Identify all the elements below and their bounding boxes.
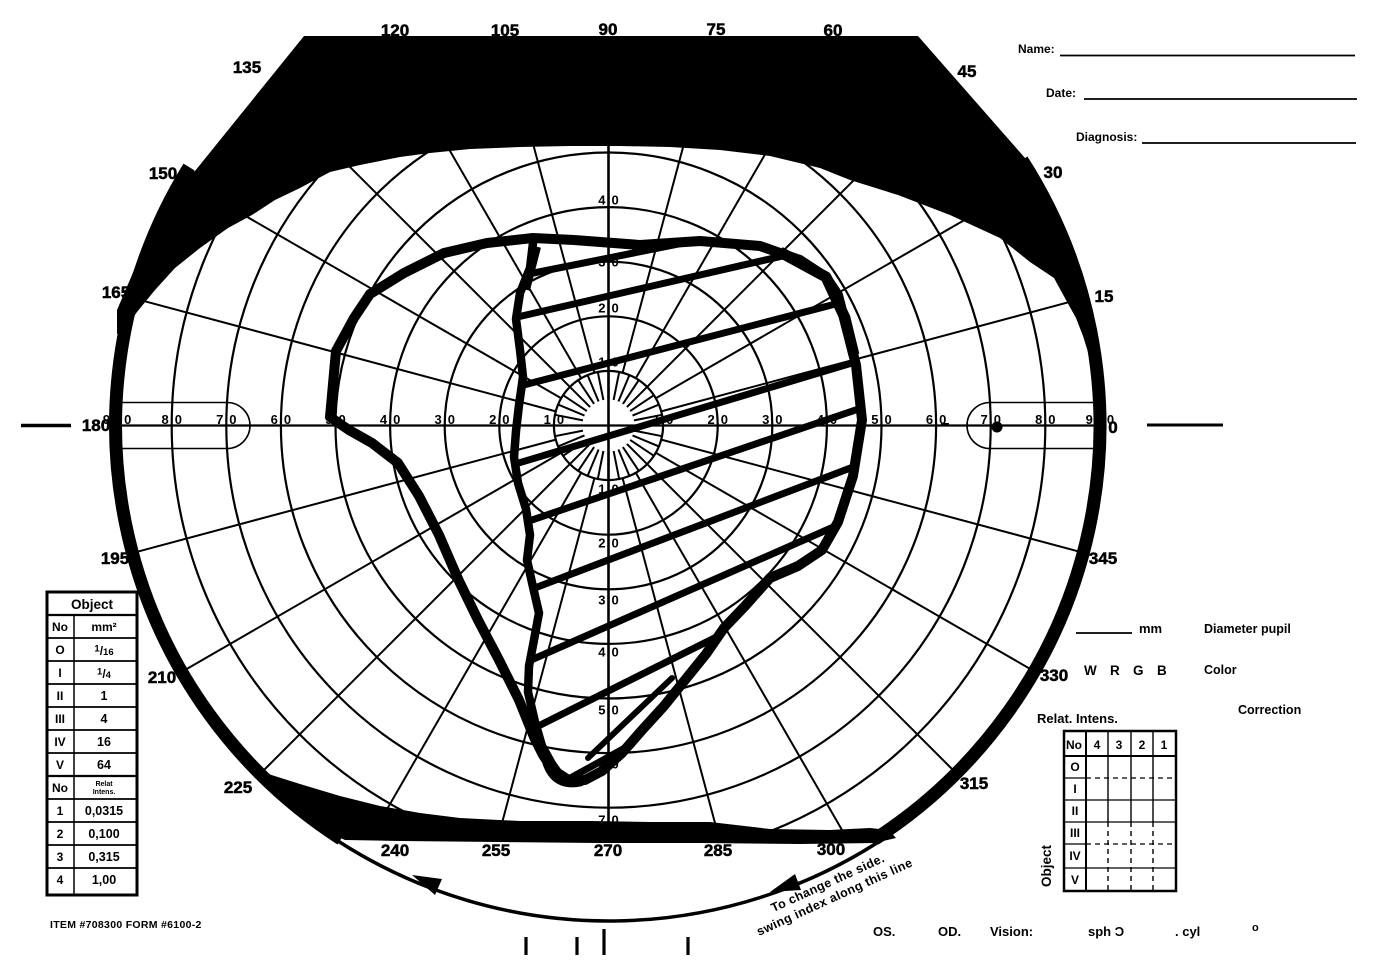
svg-text:315: 315 [960, 774, 988, 793]
svg-text:0: 0 [612, 703, 619, 718]
svg-text:0: 0 [994, 412, 1001, 427]
svg-text:OD.: OD. [938, 924, 961, 939]
svg-text:mm²: mm² [91, 620, 116, 634]
svg-text:5: 5 [598, 703, 605, 718]
svg-text:B: B [1157, 663, 1167, 678]
svg-text:3: 3 [57, 850, 64, 864]
svg-text:90: 90 [599, 20, 618, 39]
svg-text:180: 180 [82, 416, 110, 435]
svg-text:0: 0 [557, 412, 564, 427]
svg-text:8: 8 [1035, 412, 1042, 427]
svg-text:2: 2 [598, 536, 605, 551]
svg-text:0: 0 [885, 412, 892, 427]
svg-text:4: 4 [101, 712, 108, 726]
svg-text:mm: mm [1139, 621, 1162, 636]
svg-text:1: 1 [1161, 738, 1168, 752]
svg-text:9: 9 [1086, 412, 1093, 427]
svg-text:195: 195 [101, 549, 129, 568]
svg-text:Name:: Name: [1018, 42, 1055, 56]
svg-text:Object: Object [1039, 844, 1054, 887]
svg-text:0: 0 [612, 193, 619, 208]
svg-text:3: 3 [598, 593, 605, 608]
svg-text:Diameter pupil: Diameter pupil [1204, 622, 1291, 636]
svg-text:No: No [1066, 738, 1082, 752]
svg-text:Color: Color [1204, 663, 1237, 677]
svg-text:II: II [57, 689, 64, 703]
svg-text:1: 1 [57, 804, 64, 818]
svg-text:No: No [52, 620, 68, 634]
svg-text:Vision:: Vision: [990, 924, 1033, 939]
svg-text:W: W [1084, 663, 1097, 678]
svg-text:1: 1 [544, 412, 551, 427]
svg-text:1/16: 1/16 [94, 644, 113, 659]
svg-text:3: 3 [434, 412, 441, 427]
svg-text:Object: Object [71, 597, 114, 612]
svg-text:0: 0 [229, 412, 236, 427]
svg-text:0: 0 [939, 412, 946, 427]
svg-text:3: 3 [762, 412, 769, 427]
svg-text:0: 0 [502, 412, 509, 427]
svg-text:O: O [1070, 760, 1079, 774]
svg-text:Relat: Relat [95, 781, 113, 788]
svg-text:30: 30 [1044, 163, 1063, 182]
svg-text:0: 0 [1108, 418, 1117, 437]
svg-text:0: 0 [612, 536, 619, 551]
svg-text:O: O [55, 643, 64, 657]
svg-text:0: 0 [124, 412, 131, 427]
svg-text:OS.: OS. [873, 924, 895, 939]
svg-text:Correction: Correction [1238, 703, 1301, 717]
svg-text:1,00: 1,00 [92, 873, 116, 887]
svg-text:225: 225 [224, 778, 252, 797]
svg-text:8: 8 [161, 412, 168, 427]
svg-text:II: II [1072, 804, 1079, 818]
svg-text:I: I [58, 666, 61, 680]
svg-text:0,0315: 0,0315 [85, 804, 123, 818]
svg-text:0,315: 0,315 [88, 850, 119, 864]
svg-text:4: 4 [598, 193, 606, 208]
svg-text:150: 150 [149, 164, 177, 183]
svg-text:2: 2 [489, 412, 496, 427]
svg-text:2: 2 [57, 827, 64, 841]
svg-text:120: 120 [381, 21, 409, 40]
svg-text:0: 0 [1048, 412, 1055, 427]
svg-text:2: 2 [598, 301, 605, 316]
svg-text:0: 0 [721, 412, 728, 427]
svg-text:210: 210 [148, 668, 176, 687]
svg-text:64: 64 [97, 758, 111, 772]
svg-text:No: No [52, 781, 68, 795]
svg-text:60: 60 [824, 21, 843, 40]
svg-text:Intens.: Intens. [93, 789, 116, 796]
svg-text:5: 5 [871, 412, 878, 427]
svg-text:165: 165 [102, 283, 130, 302]
svg-text:75: 75 [707, 20, 726, 39]
svg-text:Relat. Intens.: Relat. Intens. [1037, 711, 1118, 726]
svg-text:1: 1 [101, 689, 108, 703]
svg-text:0: 0 [612, 301, 619, 316]
svg-text:Date:: Date: [1046, 86, 1076, 100]
svg-text:R: R [1110, 663, 1120, 678]
svg-text:7: 7 [980, 412, 987, 427]
svg-text:V: V [56, 758, 64, 772]
svg-text:4: 4 [380, 412, 388, 427]
svg-text:0: 0 [175, 412, 182, 427]
svg-text:0,100: 0,100 [88, 827, 119, 841]
svg-text:6: 6 [926, 412, 933, 427]
svg-text:6: 6 [271, 412, 278, 427]
svg-text:300: 300 [817, 840, 845, 859]
svg-text:16: 16 [97, 735, 111, 749]
svg-text:0: 0 [612, 593, 619, 608]
svg-text:3: 3 [1116, 738, 1123, 752]
svg-text:105: 105 [491, 21, 519, 40]
svg-text:45: 45 [958, 62, 977, 81]
svg-text:V: V [1071, 873, 1079, 887]
svg-text:240: 240 [381, 841, 409, 860]
svg-text:ITEM #708300 FORM #6100-2: ITEM #708300 FORM #6100-2 [50, 919, 202, 931]
svg-text:o: o [1252, 922, 1259, 934]
svg-text:sph Ɔ: sph Ɔ [1088, 924, 1124, 939]
svg-text:270: 270 [594, 841, 622, 860]
svg-text:I: I [1073, 782, 1076, 796]
svg-text:7: 7 [216, 412, 223, 427]
svg-text:4: 4 [57, 873, 64, 887]
svg-text:285: 285 [704, 841, 732, 860]
svg-text:0: 0 [612, 645, 619, 660]
svg-text:IV: IV [54, 735, 65, 749]
svg-text:15: 15 [1095, 287, 1114, 306]
svg-text:2: 2 [1139, 738, 1146, 752]
svg-text:0: 0 [393, 412, 400, 427]
svg-text:255: 255 [482, 841, 510, 860]
svg-text:0: 0 [448, 412, 455, 427]
svg-text:Diagnosis:: Diagnosis: [1076, 130, 1137, 144]
svg-text:2: 2 [707, 412, 714, 427]
svg-text:1/4: 1/4 [97, 667, 112, 682]
svg-text:4: 4 [1094, 738, 1101, 752]
svg-text:135: 135 [233, 58, 261, 77]
svg-text:III: III [1070, 826, 1080, 840]
svg-text:0: 0 [775, 412, 782, 427]
svg-text:IV: IV [1069, 849, 1080, 863]
svg-text:III: III [55, 712, 65, 726]
svg-text:. cyl: . cyl [1175, 924, 1200, 939]
svg-text:0: 0 [284, 412, 291, 427]
svg-text:330: 330 [1040, 666, 1068, 685]
svg-text:G: G [1133, 663, 1144, 678]
svg-text:4: 4 [598, 645, 606, 660]
svg-text:345: 345 [1089, 549, 1117, 568]
